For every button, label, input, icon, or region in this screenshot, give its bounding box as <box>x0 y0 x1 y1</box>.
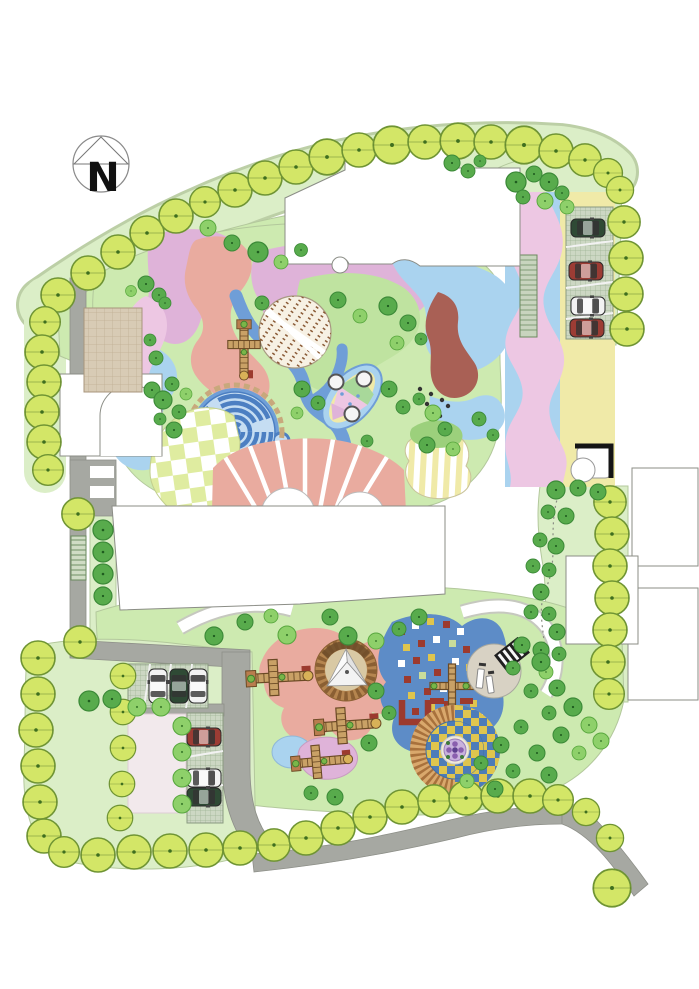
circle-shape <box>571 458 595 482</box>
use-shape <box>153 834 187 868</box>
use-shape <box>190 187 221 218</box>
use-shape <box>594 679 625 710</box>
use-shape <box>513 779 547 813</box>
site-plan-drawing: N <box>0 0 699 989</box>
circle-shape <box>425 402 429 406</box>
use-shape <box>166 422 182 438</box>
use-shape <box>516 190 530 204</box>
use-shape <box>593 733 609 749</box>
rect-shape <box>428 654 435 661</box>
use-shape <box>81 838 115 872</box>
use-shape <box>223 831 257 865</box>
use-shape <box>101 235 135 269</box>
use-shape <box>541 767 557 783</box>
use-shape <box>413 393 425 405</box>
use-shape <box>608 206 640 238</box>
circle-shape <box>440 398 444 402</box>
rect-shape <box>449 664 456 708</box>
circle-shape <box>431 683 437 689</box>
circle-shape <box>463 683 469 689</box>
use-shape <box>172 405 186 419</box>
use-shape <box>159 297 171 309</box>
use-shape <box>609 277 643 311</box>
use-shape <box>173 795 191 813</box>
car <box>187 727 221 748</box>
use-shape <box>173 717 191 735</box>
use-shape <box>593 869 630 906</box>
use-shape <box>311 396 325 410</box>
use-shape <box>294 381 310 397</box>
building-entry-bump <box>332 257 348 273</box>
use-shape <box>165 377 179 391</box>
use-shape <box>560 200 574 214</box>
use-shape <box>558 508 574 524</box>
use-shape <box>309 139 345 175</box>
rect-shape <box>460 698 473 704</box>
use-shape <box>173 743 191 761</box>
use-shape <box>542 706 556 720</box>
use-shape <box>461 164 475 178</box>
use-shape <box>609 241 643 275</box>
use-shape <box>474 125 508 159</box>
seat-stone <box>357 372 372 387</box>
use-shape <box>596 824 623 851</box>
use-shape <box>274 255 288 269</box>
use-shape <box>93 542 113 562</box>
car <box>188 669 209 703</box>
north-parking-lot <box>566 207 613 339</box>
use-shape <box>23 785 57 819</box>
use-shape <box>595 517 629 551</box>
north-arrow-compass: N <box>73 136 129 201</box>
use-shape <box>543 785 574 816</box>
use-shape <box>474 155 486 167</box>
use-shape <box>21 641 55 675</box>
use-shape <box>200 220 216 236</box>
building-east-upper <box>632 468 698 566</box>
bench <box>476 669 484 689</box>
gazebo <box>571 446 611 482</box>
site-plan: N <box>0 0 699 989</box>
rect-shape <box>443 621 450 628</box>
use-shape <box>474 756 488 770</box>
use-shape <box>237 614 253 630</box>
use-shape <box>159 199 193 233</box>
use-shape <box>278 626 296 644</box>
use-shape <box>408 125 442 159</box>
seat-stone <box>345 407 360 422</box>
use-shape <box>255 296 269 310</box>
use-shape <box>71 256 105 290</box>
rect-shape <box>404 676 411 683</box>
road-west-parking-notch <box>90 486 114 498</box>
use-shape <box>444 155 460 171</box>
circle-shape <box>446 404 450 408</box>
use-shape <box>385 790 419 824</box>
circle-shape <box>340 392 344 396</box>
use-shape <box>382 706 396 720</box>
use-shape <box>392 622 406 636</box>
road-grass-paver-strip <box>71 536 86 580</box>
use-shape <box>327 789 343 805</box>
use-shape <box>154 413 166 425</box>
use-shape <box>93 564 113 584</box>
use-shape <box>342 133 376 167</box>
seat-stone <box>329 375 344 390</box>
circle-shape <box>429 392 433 396</box>
use-shape <box>548 538 564 554</box>
plaza-tan-grid <box>84 308 142 392</box>
use-shape <box>152 698 170 716</box>
use-shape <box>94 587 112 605</box>
rect-shape <box>419 672 426 679</box>
use-shape <box>27 425 61 459</box>
rect-shape <box>418 640 425 647</box>
car <box>187 787 221 808</box>
use-shape <box>361 435 373 447</box>
use-shape <box>400 315 416 331</box>
use-shape <box>514 637 530 653</box>
use-shape <box>415 333 427 345</box>
compass-north-label: N <box>86 155 119 201</box>
use-shape <box>438 422 452 436</box>
use-shape <box>62 498 94 530</box>
use-shape <box>487 781 503 797</box>
use-shape <box>25 395 59 429</box>
use-shape <box>289 821 323 855</box>
circle-shape <box>446 747 452 753</box>
use-shape <box>117 835 151 869</box>
rect-shape <box>457 628 464 635</box>
car <box>570 318 604 339</box>
use-shape <box>533 533 547 547</box>
use-shape <box>103 690 121 708</box>
circle-shape <box>460 755 464 759</box>
circle-shape <box>452 747 458 753</box>
use-shape <box>173 769 191 787</box>
use-shape <box>21 677 55 711</box>
use-shape <box>30 307 61 338</box>
use-shape <box>264 609 278 623</box>
use-shape <box>304 786 318 800</box>
use-shape <box>339 627 357 645</box>
use-shape <box>593 613 627 647</box>
use-shape <box>258 829 290 861</box>
circle-shape <box>446 755 450 759</box>
use-shape <box>379 297 397 315</box>
use-shape <box>553 727 569 743</box>
use-shape <box>390 336 404 350</box>
use-shape <box>506 764 520 778</box>
use-shape <box>218 173 252 207</box>
car <box>148 669 169 703</box>
use-shape <box>581 717 597 733</box>
circle-shape <box>452 741 458 747</box>
rect-shape <box>408 692 415 699</box>
use-shape <box>368 633 384 649</box>
use-shape <box>25 335 59 369</box>
building-central <box>112 506 445 610</box>
use-shape <box>570 480 586 496</box>
rect-shape <box>463 646 470 653</box>
use-shape <box>149 351 163 365</box>
use-shape <box>542 607 556 621</box>
rect-shape <box>434 669 441 676</box>
use-shape <box>606 176 633 203</box>
use-shape <box>487 429 499 441</box>
circle-shape <box>345 670 349 674</box>
use-shape <box>368 683 384 699</box>
use-shape <box>506 172 526 192</box>
use-shape <box>330 292 346 308</box>
use-shape <box>205 627 223 645</box>
use-shape <box>19 713 53 747</box>
rect-shape <box>413 657 420 664</box>
use-shape <box>549 680 565 696</box>
use-shape <box>552 647 566 661</box>
use-shape <box>547 481 565 499</box>
circle-shape <box>452 753 458 759</box>
circle-shape <box>348 402 352 406</box>
use-shape <box>381 381 397 397</box>
use-shape <box>411 609 427 625</box>
use-shape <box>549 624 565 640</box>
rect-shape <box>430 698 444 704</box>
use-shape <box>189 833 223 867</box>
car <box>569 261 603 282</box>
use-shape <box>322 609 338 625</box>
circle-shape <box>356 394 360 398</box>
use-shape <box>514 720 528 734</box>
use-shape <box>321 811 355 845</box>
use-shape <box>572 798 599 825</box>
car <box>571 296 605 317</box>
circle-shape <box>418 387 422 391</box>
rect-shape <box>412 708 419 715</box>
use-shape <box>279 150 313 184</box>
use-shape <box>526 559 540 573</box>
use-shape <box>33 455 64 486</box>
car <box>169 669 190 703</box>
use-shape <box>295 244 308 257</box>
use-shape <box>248 161 282 195</box>
use-shape <box>460 774 474 788</box>
use-shape <box>21 749 55 783</box>
use-shape <box>419 437 435 453</box>
use-shape <box>595 581 629 615</box>
use-shape <box>180 388 192 400</box>
use-shape <box>505 126 542 163</box>
use-shape <box>524 605 538 619</box>
use-shape <box>524 684 538 698</box>
use-shape <box>446 442 460 456</box>
use-shape <box>291 407 303 419</box>
use-shape <box>590 484 606 500</box>
use-shape <box>79 691 99 711</box>
use-shape <box>540 173 558 191</box>
use-shape <box>493 737 509 753</box>
rect-shape <box>403 644 410 651</box>
use-shape <box>373 126 410 163</box>
use-shape <box>610 312 644 346</box>
use-shape <box>532 653 550 671</box>
use-shape <box>224 235 240 251</box>
use-shape <box>93 520 113 540</box>
rect-shape <box>433 636 440 643</box>
use-shape <box>541 505 555 519</box>
use-shape <box>110 663 136 689</box>
rect-shape <box>449 640 456 647</box>
car <box>571 218 605 239</box>
use-shape <box>539 134 573 168</box>
road-west-parking-notch <box>90 466 114 478</box>
use-shape <box>27 365 61 399</box>
use-shape <box>144 334 156 346</box>
use-shape <box>533 584 549 600</box>
use-shape <box>353 800 387 834</box>
use-shape <box>472 412 486 426</box>
use-shape <box>49 837 80 868</box>
car <box>187 768 221 789</box>
use-shape <box>564 698 582 716</box>
use-shape <box>529 745 545 761</box>
use-shape <box>126 286 137 297</box>
use-shape <box>542 563 556 577</box>
use-shape <box>526 166 542 182</box>
use-shape <box>64 626 96 658</box>
use-shape <box>593 549 627 583</box>
use-shape <box>396 400 410 414</box>
use-shape <box>248 242 268 262</box>
rect-shape <box>398 660 405 667</box>
use-shape <box>110 735 136 761</box>
use-shape <box>361 735 377 751</box>
use-shape <box>138 276 154 292</box>
rect-shape <box>427 618 434 625</box>
use-shape <box>425 405 441 421</box>
use-shape <box>353 309 367 323</box>
circle-shape <box>446 741 450 745</box>
use-shape <box>109 771 135 797</box>
use-shape <box>440 123 476 159</box>
use-shape <box>107 805 133 831</box>
use-shape <box>154 391 172 409</box>
use-shape <box>537 193 553 209</box>
use-shape <box>555 186 569 200</box>
use-shape <box>572 746 586 760</box>
use-shape <box>128 698 146 716</box>
use-shape <box>506 661 520 675</box>
circle-shape <box>458 747 464 753</box>
use-shape <box>418 785 450 817</box>
use-shape <box>130 216 164 250</box>
use-shape <box>591 645 625 679</box>
